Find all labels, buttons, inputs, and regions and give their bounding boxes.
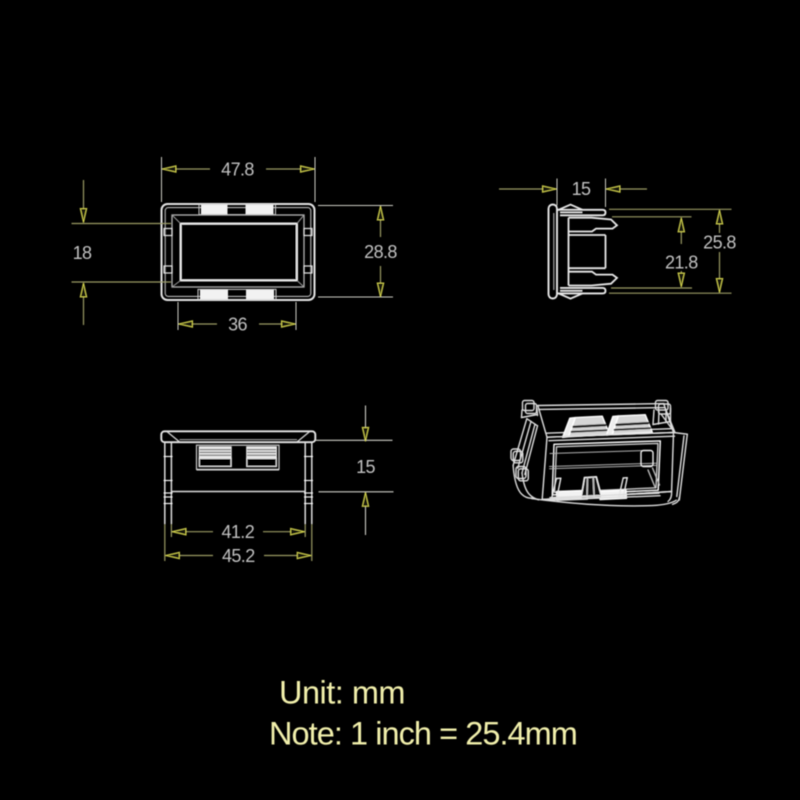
svg-text:15: 15 (572, 179, 591, 199)
svg-text:Note: 1 inch = 25.4mm: Note: 1 inch = 25.4mm (269, 716, 577, 752)
svg-text:25.8: 25.8 (703, 233, 736, 253)
svg-text:41.2: 41.2 (221, 522, 254, 542)
svg-text:36: 36 (228, 315, 247, 335)
svg-text:21.8: 21.8 (665, 253, 698, 273)
svg-text:18: 18 (73, 243, 92, 263)
svg-text:47.8: 47.8 (221, 160, 254, 180)
svg-text:28.8: 28.8 (364, 242, 397, 262)
svg-text:15: 15 (356, 457, 375, 477)
svg-text:45.2: 45.2 (222, 546, 255, 566)
svg-text:Unit: mm: Unit: mm (279, 675, 405, 711)
